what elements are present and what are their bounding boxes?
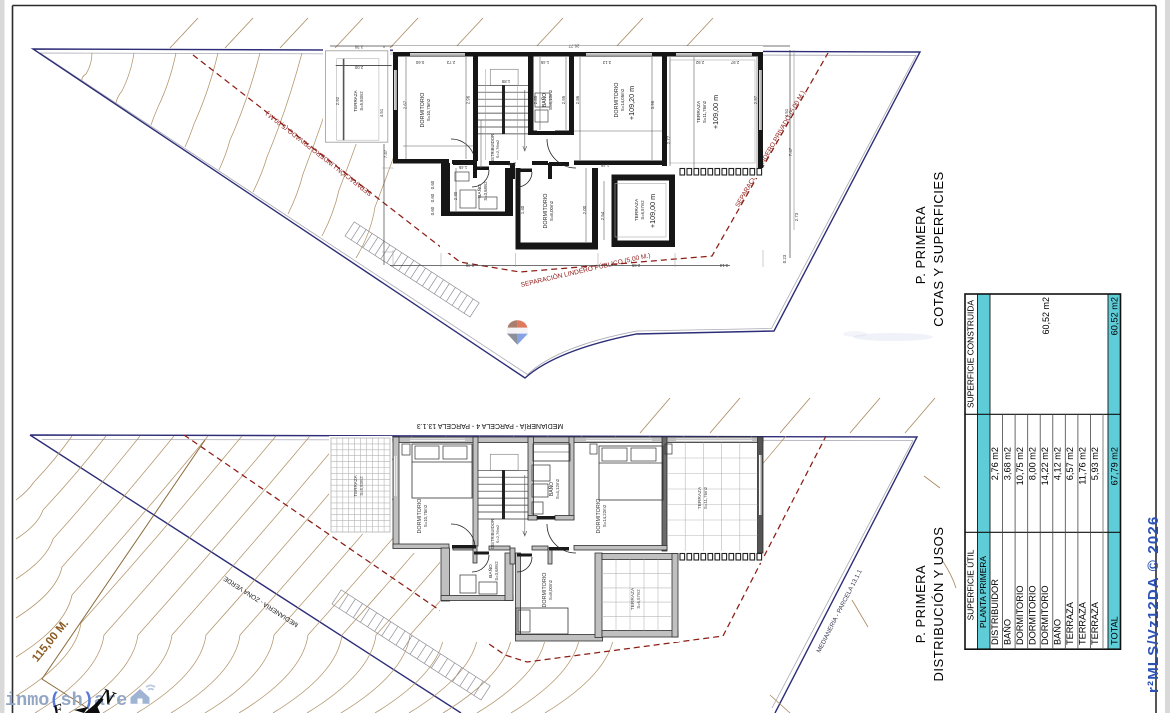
svg-text:1.45: 1.45: [458, 165, 467, 170]
svg-text:S=2,76m2: S=2,76m2: [495, 524, 500, 543]
svg-text:0.60: 0.60: [430, 180, 435, 189]
svg-text:TERRAZA: TERRAZA: [1090, 601, 1100, 645]
svg-text:2.73: 2.73: [446, 60, 455, 65]
svg-text:2,76 m2: 2,76 m2: [990, 447, 1000, 480]
svg-text:DORMITORIO: DORMITORIO: [1015, 585, 1025, 645]
svg-text:S=5,93m2: S=5,93m2: [359, 476, 364, 496]
svg-text:SUPERFICIE ÚTIL: SUPERFICIE ÚTIL: [966, 549, 976, 620]
svg-text:0.23: 0.23: [782, 254, 787, 263]
svg-text:DISTRIBUIDOR: DISTRIBUIDOR: [990, 579, 1000, 645]
svg-text:S=2,76m2: S=2,76m2: [495, 139, 500, 158]
svg-text:+109,20 m: +109,20 m: [627, 86, 636, 120]
svg-text:S=11,76m2: S=11,76m2: [702, 100, 707, 123]
svg-text:2.77: 2.77: [666, 135, 671, 144]
svg-text:7.47: 7.47: [383, 149, 388, 158]
svg-text:r²MLS/Vz12DA © 2026: r²MLS/Vz12DA © 2026: [1145, 515, 1162, 693]
svg-text:SUPERFICIE CONSTRUIDA: SUPERFICIE CONSTRUIDA: [966, 300, 976, 408]
svg-text:S=14,22m2: S=14,22m2: [602, 504, 607, 527]
svg-text:5,93 m2: 5,93 m2: [1090, 447, 1100, 480]
svg-text:S=3,68m2: S=3,68m2: [494, 561, 499, 581]
svg-text:2.73: 2.73: [794, 212, 799, 221]
svg-text:S=8,00m2: S=8,00m2: [548, 579, 553, 600]
svg-text:2.69: 2.69: [631, 263, 640, 268]
svg-text:26.77: 26.77: [568, 44, 579, 49]
svg-text:2.46: 2.46: [507, 162, 516, 167]
svg-text:P. PRIMERA: P. PRIMERA: [913, 206, 928, 284]
svg-text:3.13: 3.13: [719, 263, 728, 268]
svg-text:7.47: 7.47: [788, 147, 793, 156]
svg-text:2.97: 2.97: [753, 95, 758, 104]
svg-text:2.67: 2.67: [403, 100, 408, 109]
svg-text:2.30: 2.30: [453, 191, 458, 200]
svg-text:2.00: 2.00: [354, 65, 363, 70]
svg-text:4,12 m2: 4,12 m2: [1053, 447, 1063, 480]
svg-text:S=5,93m2: S=5,93m2: [359, 91, 364, 111]
svg-text:BAÑO: BAÑO: [476, 184, 483, 198]
svg-text:3.13: 3.13: [602, 60, 611, 65]
svg-text:DORMITORIO: DORMITORIO: [1040, 585, 1050, 645]
svg-text:TERRAZA: TERRAZA: [353, 89, 358, 111]
svg-text:2.96: 2.96: [466, 95, 471, 104]
svg-text:DISTRIBUCIÓN Y USOS: DISTRIBUCIÓN Y USOS: [931, 527, 946, 682]
svg-text:67,79 m2: 67,79 m2: [1110, 447, 1120, 485]
svg-text:S=10,75m2: S=10,75m2: [423, 504, 428, 527]
svg-text:2.30: 2.30: [354, 45, 363, 50]
svg-text:1.40: 1.40: [520, 205, 525, 214]
svg-text:BAÑO: BAÑO: [1053, 619, 1063, 645]
svg-text:3.96: 3.96: [650, 100, 655, 109]
svg-text:1.46: 1.46: [600, 163, 609, 168]
svg-text:S=3,68m2: S=3,68m2: [483, 181, 488, 201]
svg-text:0.60: 0.60: [430, 193, 435, 202]
svg-text:8,00 m2: 8,00 m2: [1028, 447, 1038, 480]
svg-text:11,76 m2: 11,76 m2: [1078, 447, 1088, 485]
svg-text:2.95: 2.95: [561, 95, 566, 104]
svg-text:BAÑO: BAÑO: [541, 93, 548, 107]
svg-text:0.60: 0.60: [415, 60, 424, 65]
svg-text:2.92: 2.92: [335, 96, 340, 105]
svg-text:+109,00 m: +109,00 m: [648, 194, 657, 228]
svg-text:2.54: 2.54: [600, 211, 605, 220]
svg-text:60,52 m2: 60,52 m2: [1041, 297, 1051, 335]
svg-text:4.51: 4.51: [784, 108, 789, 117]
svg-text:0.60: 0.60: [430, 206, 435, 215]
svg-text:10,75 m2: 10,75 m2: [1015, 447, 1025, 485]
svg-text:14,22 m2: 14,22 m2: [1040, 447, 1050, 485]
svg-text:TOTAL: TOTAL: [1110, 616, 1120, 645]
svg-text:S=6,57m2: S=6,57m2: [640, 200, 645, 220]
svg-text:MEDIANERÍA - PARCELA 4 - PARCE: MEDIANERÍA - PARCELA 4 - PARCELA 13.1.3: [417, 422, 564, 431]
svg-text:2.86: 2.86: [575, 95, 580, 104]
svg-text:TERRAZA: TERRAZA: [353, 474, 358, 496]
svg-text:2.92: 2.92: [695, 60, 704, 65]
svg-text:TERRAZA: TERRAZA: [1065, 601, 1075, 645]
svg-text:2.00: 2.00: [582, 205, 587, 214]
svg-text:1.45: 1.45: [540, 60, 549, 65]
svg-text:S=4,13m2: S=4,13m2: [548, 89, 553, 110]
svg-text:S=8,00m2: S=8,00m2: [549, 200, 554, 221]
svg-text:2.40: 2.40: [465, 263, 474, 268]
svg-text:S=10,75m2: S=10,75m2: [426, 98, 431, 121]
svg-text:BAÑO: BAÑO: [548, 482, 555, 496]
svg-text:2.85: 2.85: [533, 95, 538, 104]
svg-text:+109,00 m: +109,00 m: [711, 95, 720, 129]
svg-text:S=6,57m2: S=6,57m2: [636, 589, 641, 609]
svg-text:2.97: 2.97: [730, 60, 739, 65]
svg-text:PLANTA PRIMERA: PLANTA PRIMERA: [978, 556, 988, 628]
svg-text:DORMITORIO: DORMITORIO: [1028, 585, 1038, 645]
svg-text:1.89: 1.89: [501, 79, 510, 84]
svg-text:S=14,05m2: S=14,05m2: [620, 88, 625, 111]
svg-text:4.51: 4.51: [379, 108, 384, 117]
svg-text:3,68 m2: 3,68 m2: [1002, 447, 1012, 480]
svg-text:TERRAZA: TERRAZA: [1078, 601, 1088, 645]
svg-text:BAÑO: BAÑO: [487, 564, 494, 578]
svg-text:COTAS Y SUPERFICIES: COTAS Y SUPERFICIES: [931, 171, 946, 326]
svg-text:6,57 m2: 6,57 m2: [1065, 447, 1075, 480]
svg-text:BAÑO: BAÑO: [1002, 619, 1012, 645]
svg-text:S=4,12m2: S=4,12m2: [555, 478, 560, 499]
svg-text:60,52 m2: 60,52 m2: [1110, 297, 1120, 335]
svg-text:P. PRIMERA: P. PRIMERA: [913, 565, 928, 643]
svg-text:S=11,76m2: S=11,76m2: [703, 486, 708, 509]
